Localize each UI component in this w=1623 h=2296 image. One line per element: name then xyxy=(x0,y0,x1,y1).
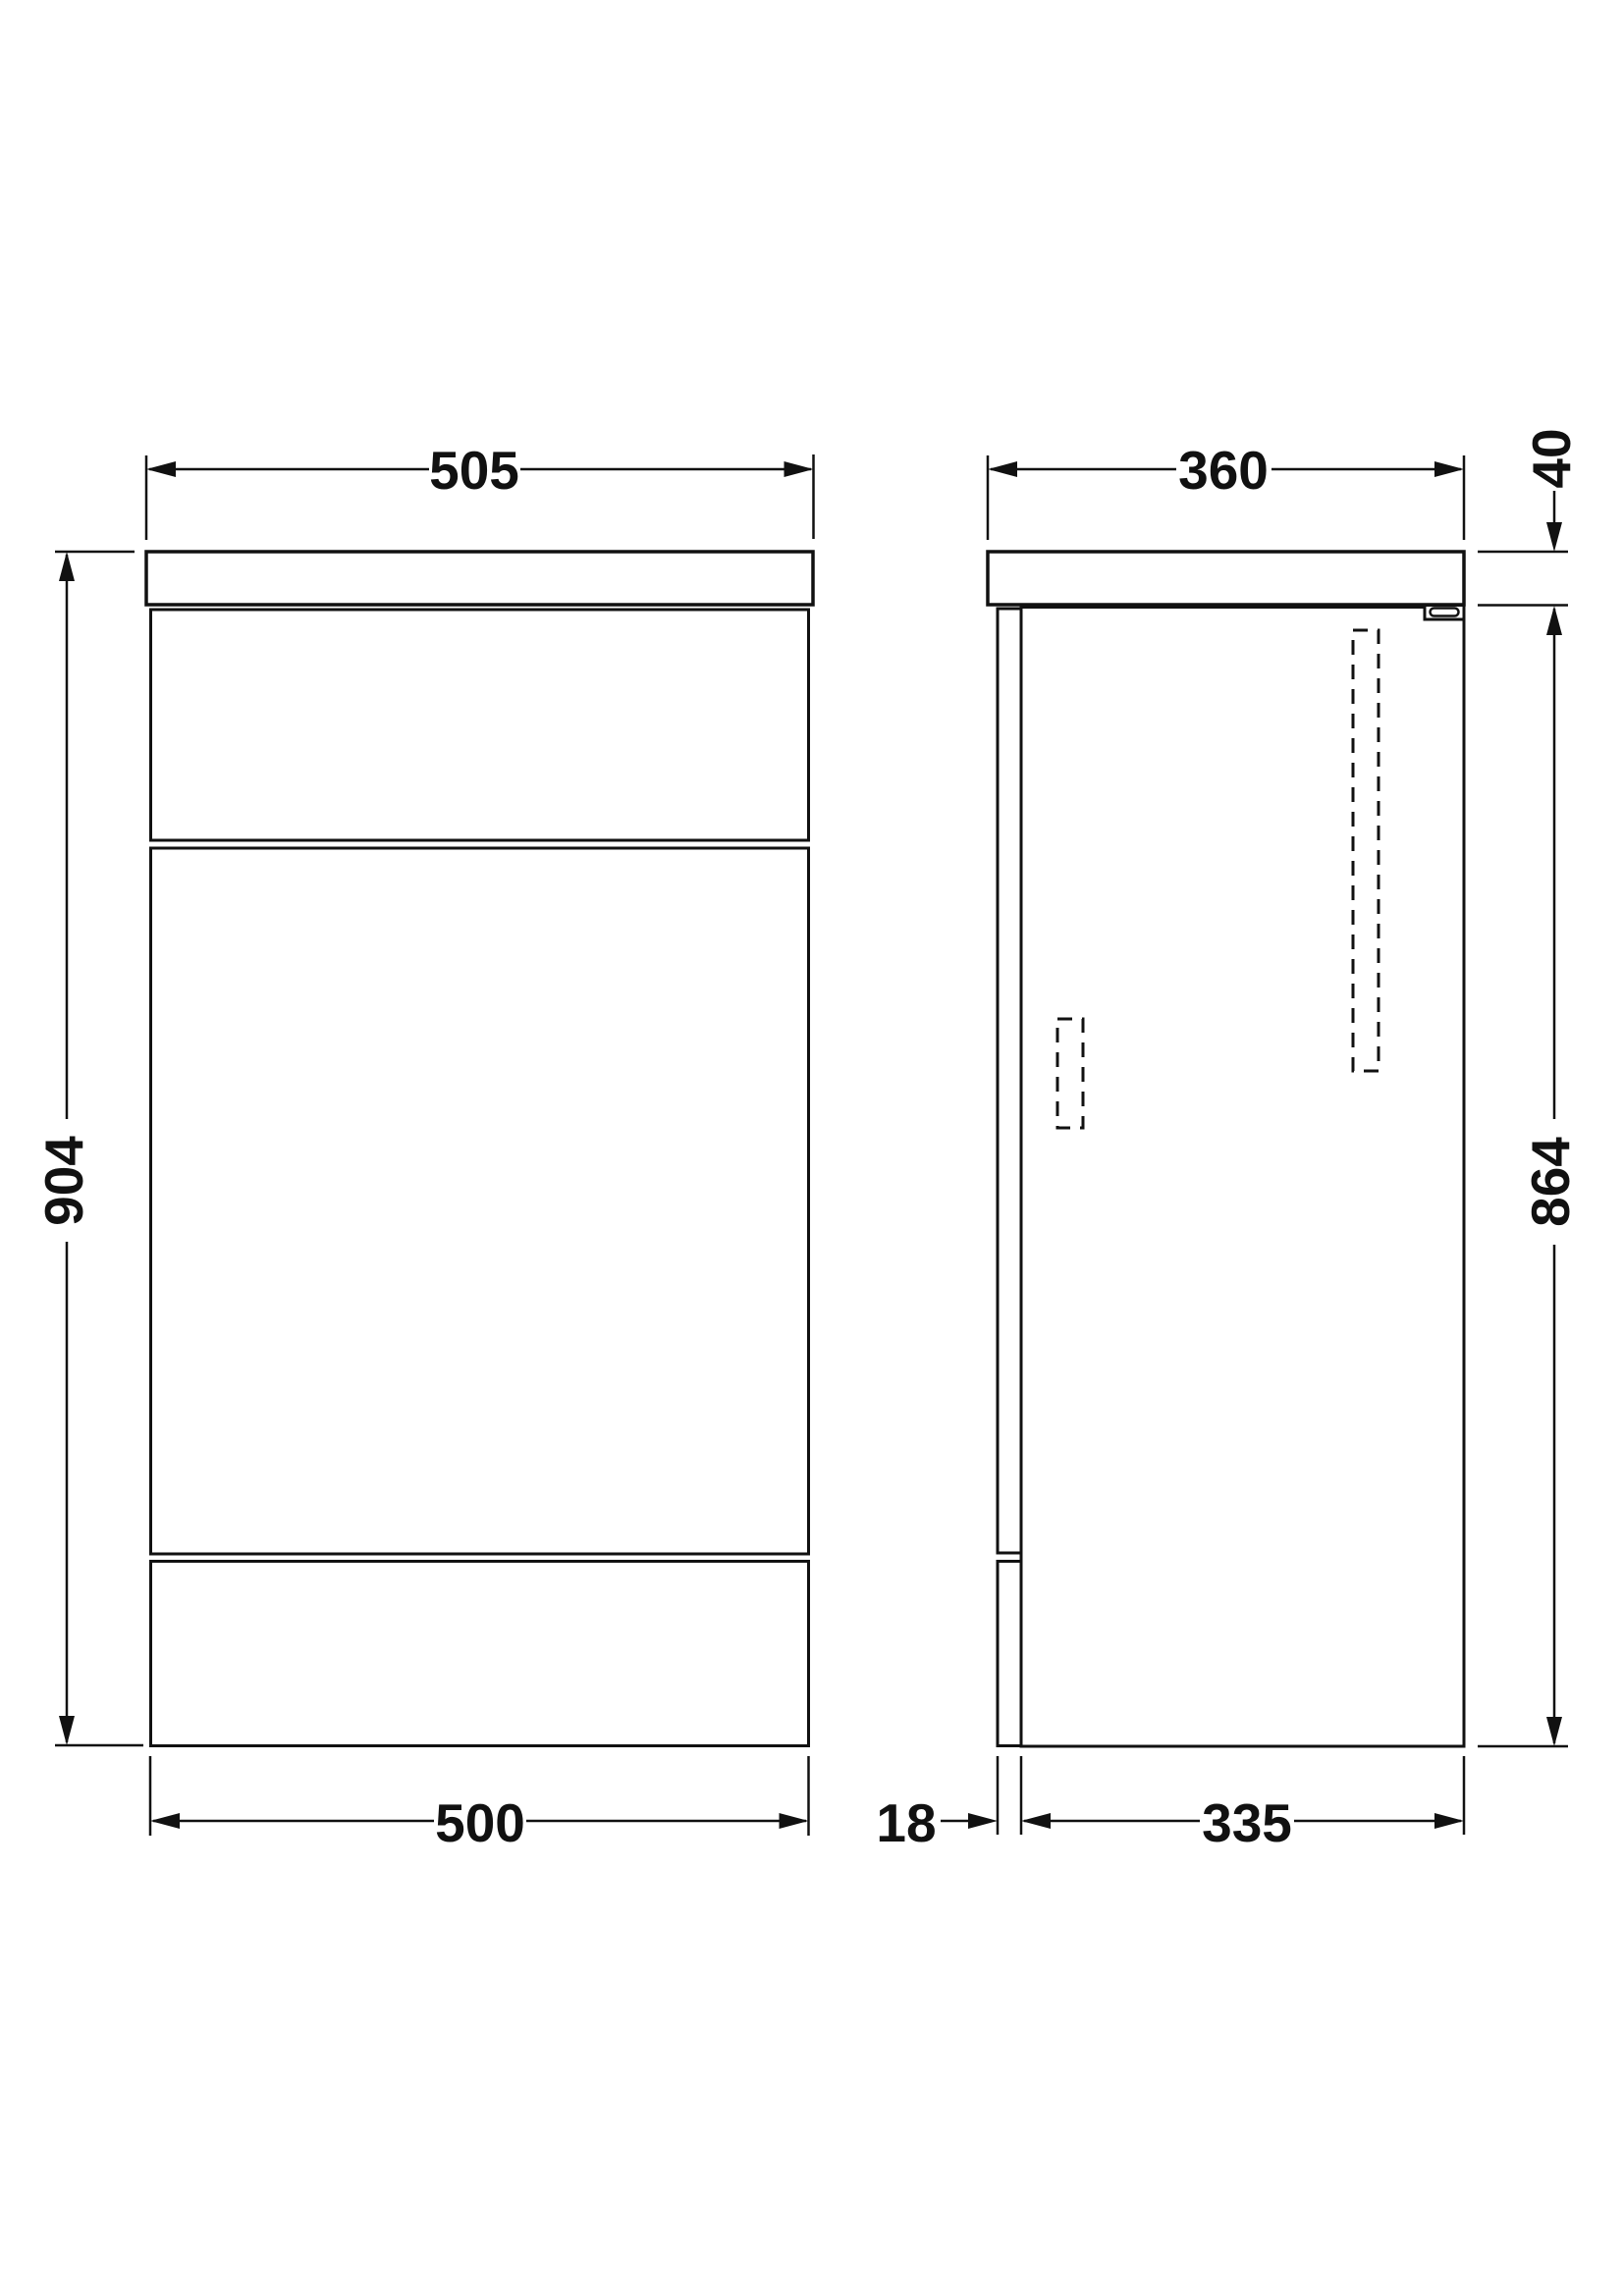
dim-label-500: 500 xyxy=(435,1792,525,1853)
dim-label-864: 864 xyxy=(1520,1137,1581,1227)
dim-label-18: 18 xyxy=(876,1792,936,1853)
wall-fixing-bracket-icon xyxy=(1425,606,1464,620)
dim-label-335: 335 xyxy=(1202,1792,1292,1853)
side-elevation-view xyxy=(988,552,1464,1746)
front-countertop xyxy=(146,552,813,605)
dim-label-904: 904 xyxy=(33,1136,94,1226)
front-elevation-view xyxy=(146,552,813,1746)
dim-label-505: 505 xyxy=(429,440,519,501)
side-countertop xyxy=(988,552,1464,605)
vanity-unit-technical-drawing: 505 904 500 360 40 xyxy=(0,0,1623,2296)
side-cabinet-body xyxy=(1021,608,1464,1747)
side-back-panel-upper xyxy=(998,609,1021,1553)
side-back-panel-lower xyxy=(998,1562,1021,1746)
dim-label-360: 360 xyxy=(1178,440,1269,501)
front-plinth-panel xyxy=(151,1562,809,1746)
front-door-panel xyxy=(151,848,809,1554)
technical-drawing-page: 505 904 500 360 40 xyxy=(0,0,1623,2296)
dim-label-40: 40 xyxy=(1521,428,1582,488)
front-top-panel xyxy=(151,610,809,840)
bracket-slot xyxy=(1431,609,1459,616)
